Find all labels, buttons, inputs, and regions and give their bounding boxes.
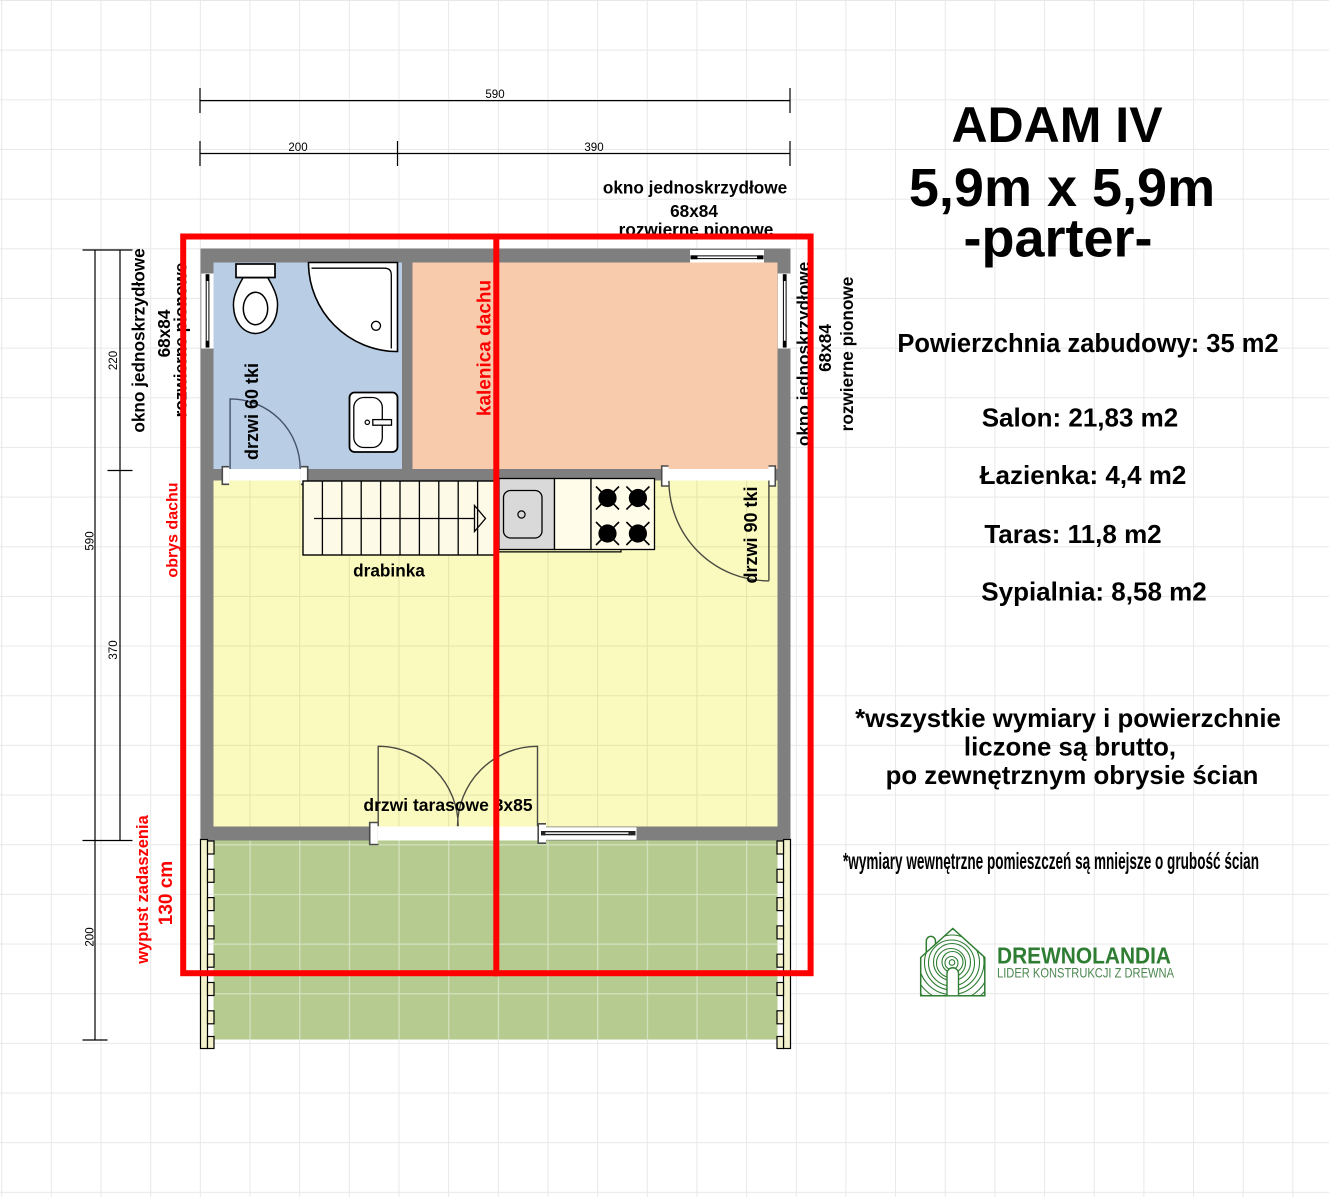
svg-text:130 cm: 130 cm bbox=[156, 861, 177, 925]
svg-text:Powierzchnia zabudowy: 35 m2: Powierzchnia zabudowy: 35 m2 bbox=[897, 330, 1278, 358]
svg-text:Łazienka: 4,4 m2: Łazienka: 4,4 m2 bbox=[980, 460, 1187, 490]
svg-text:*wszystkie wymiary i powierzch: *wszystkie wymiary i powierzchnie bbox=[855, 705, 1281, 733]
svg-text:590: 590 bbox=[485, 89, 504, 101]
svg-text:200: 200 bbox=[85, 927, 97, 946]
svg-text:*wymiary wewnętrzne pomieszcze: *wymiary wewnętrzne pomieszczeń są mniej… bbox=[843, 848, 1259, 874]
svg-text:Taras: 11,8 m2: Taras: 11,8 m2 bbox=[984, 519, 1161, 549]
svg-text:kalenica dachu: kalenica dachu bbox=[475, 280, 496, 416]
svg-text:ADAM IV: ADAM IV bbox=[951, 97, 1163, 153]
svg-text:wypust zadaszenia: wypust zadaszenia bbox=[134, 814, 152, 964]
svg-text:drzwi 90 tki: drzwi 90 tki bbox=[741, 486, 761, 583]
svg-text:200: 200 bbox=[288, 142, 307, 154]
svg-text:590: 590 bbox=[85, 531, 97, 550]
svg-text:Salon: 21,83 m2: Salon: 21,83 m2 bbox=[982, 403, 1179, 433]
svg-text:liczone są brutto,: liczone są brutto, bbox=[964, 734, 1176, 762]
svg-text:Sypialnia: 8,58 m2: Sypialnia: 8,58 m2 bbox=[981, 577, 1206, 607]
svg-text:okno jednoskrzydłowe: okno jednoskrzydłowe bbox=[603, 178, 787, 198]
svg-text:obrys dachu: obrys dachu bbox=[165, 482, 182, 577]
svg-text:370: 370 bbox=[108, 640, 120, 659]
svg-text:drzwi 60 tki: drzwi 60 tki bbox=[242, 363, 262, 460]
svg-text:-parter-: -parter- bbox=[963, 209, 1152, 269]
svg-text:drabinka: drabinka bbox=[353, 561, 425, 581]
svg-text:rozwierne pionowe: rozwierne pionowe bbox=[837, 277, 857, 432]
svg-text:LIDER KONSTRUKCJI Z DREWNA: LIDER KONSTRUKCJI Z DREWNA bbox=[997, 965, 1175, 981]
svg-text:220: 220 bbox=[108, 351, 120, 370]
svg-text:390: 390 bbox=[584, 142, 603, 154]
svg-text:68x84: 68x84 bbox=[815, 324, 835, 372]
svg-text:okno jednoskrzydłowe: okno jednoskrzydłowe bbox=[129, 248, 149, 432]
svg-text:68x84: 68x84 bbox=[670, 201, 718, 221]
svg-text:po zewnętrznym obrysie ścian: po zewnętrznym obrysie ścian bbox=[886, 762, 1259, 790]
svg-text:drzwi tarasowe 3x85: drzwi tarasowe 3x85 bbox=[363, 795, 533, 815]
